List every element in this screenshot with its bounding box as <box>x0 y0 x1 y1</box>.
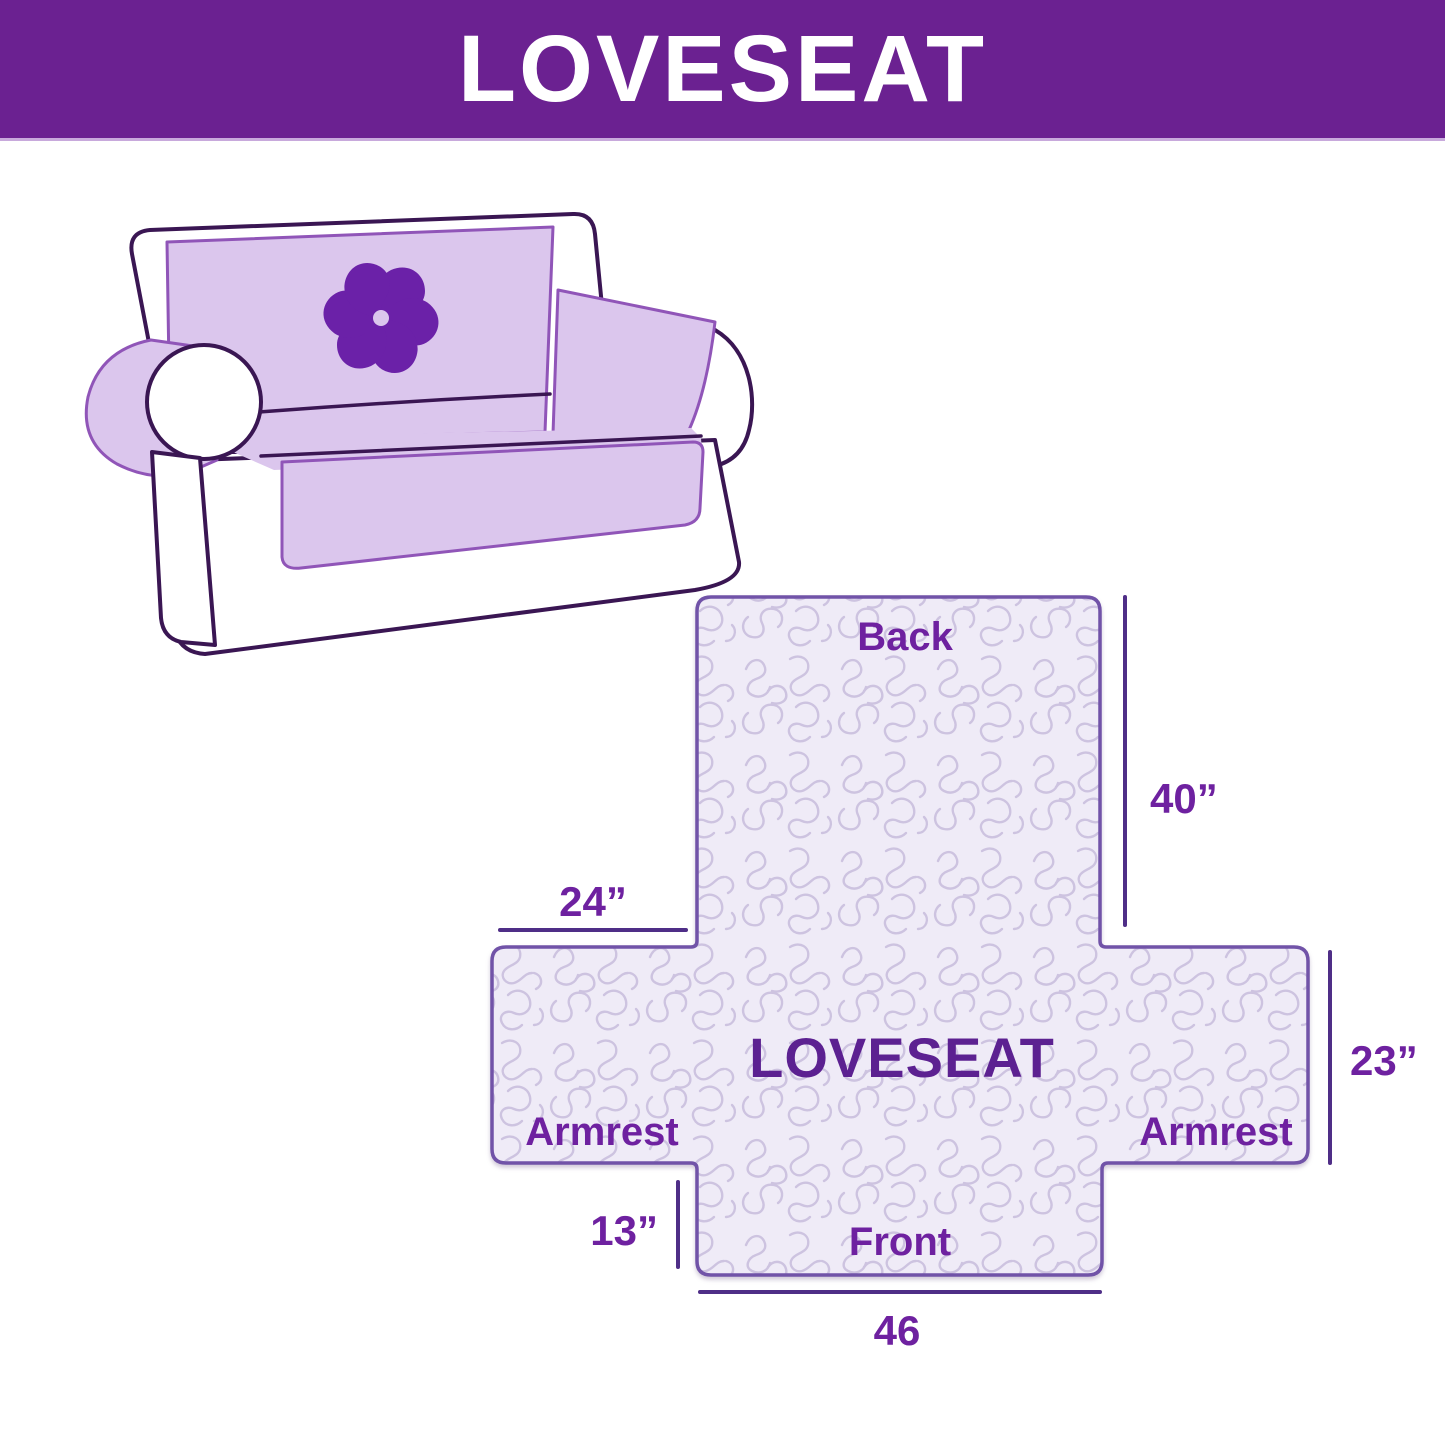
label-back: Back <box>857 615 953 659</box>
page-title: LOVESEAT <box>458 22 987 117</box>
label-center-loveseat: LOVESEAT <box>749 1026 1055 1089</box>
label-armrest-left: Armrest <box>525 1110 678 1154</box>
dim-side-depth: 23” <box>1350 1037 1418 1084</box>
infographic-canvas: LOVESEAT <box>0 0 1445 1445</box>
sofa-right-arm-cover <box>553 290 715 434</box>
label-front: Front <box>849 1220 951 1264</box>
cover-dimension-diagram: Back LOVESEAT Armrest Armrest Front 40” … <box>450 555 1445 1375</box>
dim-front-drop: 13” <box>590 1207 658 1254</box>
header-banner: LOVESEAT <box>0 0 1445 141</box>
cover-outline-shape <box>492 597 1308 1275</box>
dim-armrest-width: 24” <box>559 878 627 925</box>
dim-front-width: 46 <box>874 1307 921 1354</box>
label-armrest-right: Armrest <box>1139 1110 1292 1154</box>
dim-back-height: 40” <box>1150 775 1218 822</box>
sofa-left-arm-roll <box>147 345 261 459</box>
